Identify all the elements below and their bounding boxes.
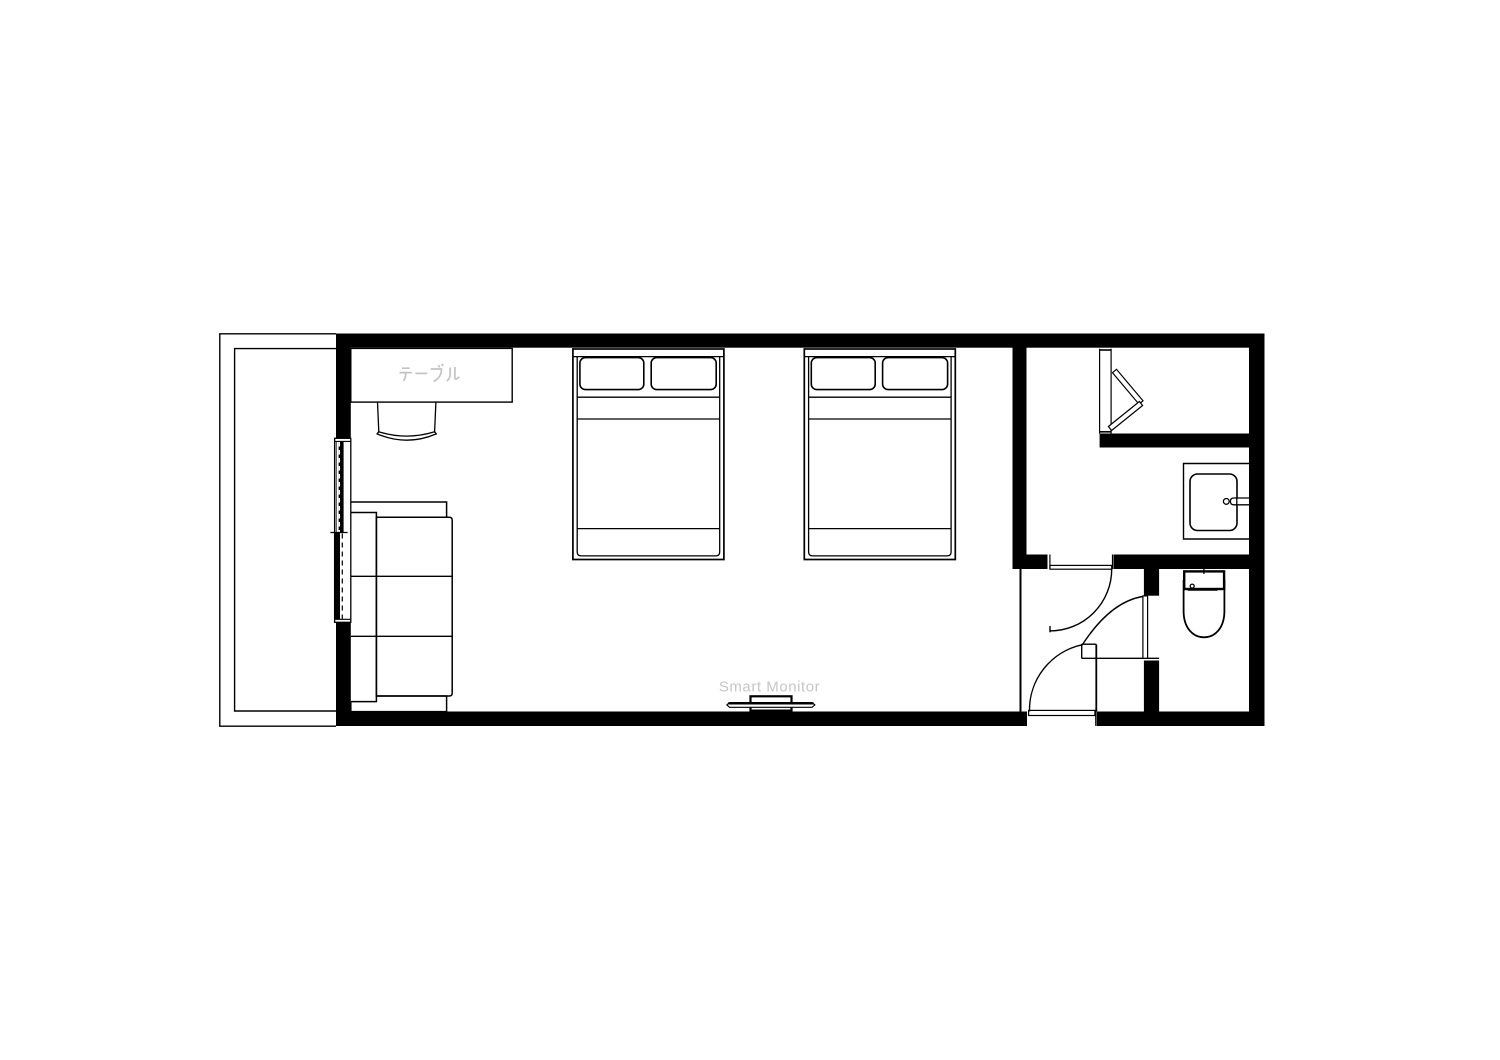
svg-text:Smart Monitor: Smart Monitor	[719, 679, 820, 696]
